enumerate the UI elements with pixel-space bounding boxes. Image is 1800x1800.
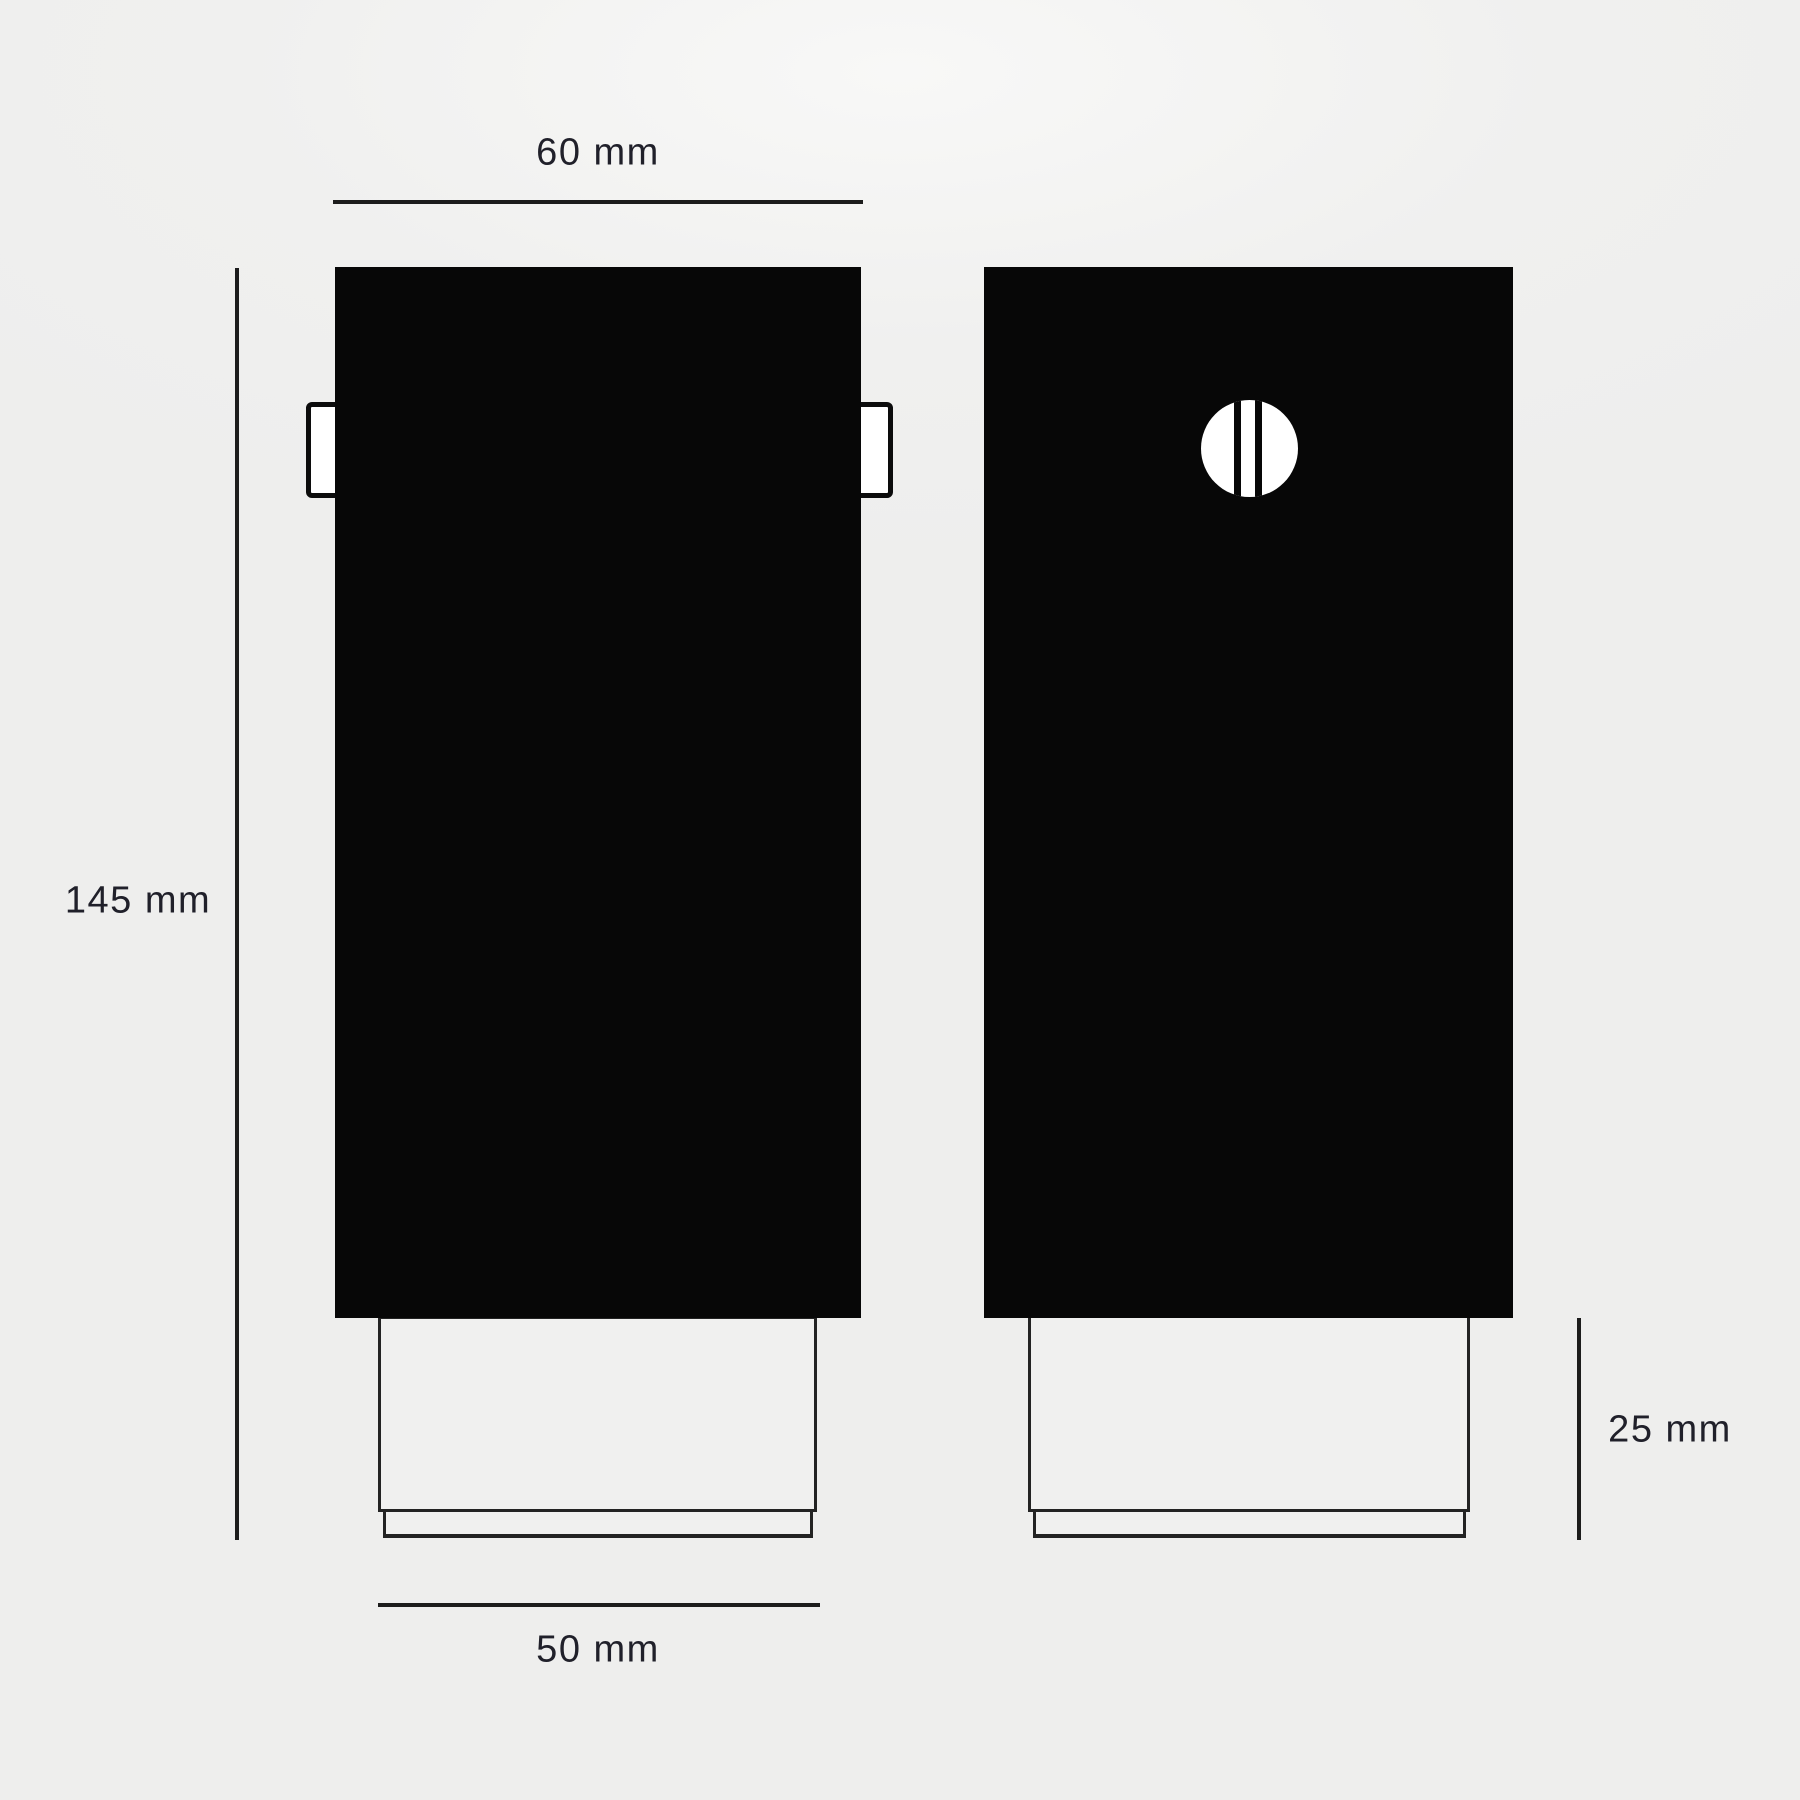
back-view-base <box>1028 1315 1470 1512</box>
dim-line-base-height <box>1577 1318 1581 1540</box>
dim-label-base-width: 50 mm <box>536 1629 660 1672</box>
dim-line-base-width <box>378 1603 820 1607</box>
screw-head-icon <box>1201 400 1298 497</box>
back-view-base-plate <box>1033 1509 1466 1538</box>
dim-label-base-height: 25 mm <box>1608 1409 1732 1452</box>
screw-slot-line-right <box>1255 400 1262 497</box>
dim-label-overall-height: 145 mm <box>65 880 211 923</box>
screw-slot-line-left <box>1234 400 1241 497</box>
dim-line-overall-height <box>235 268 239 1540</box>
dim-label-overall-width: 60 mm <box>536 132 660 175</box>
dim-line-overall-width <box>333 200 863 204</box>
front-view-base <box>378 1316 817 1512</box>
front-view-body <box>335 267 861 1318</box>
front-view-base-plate <box>383 1509 813 1538</box>
